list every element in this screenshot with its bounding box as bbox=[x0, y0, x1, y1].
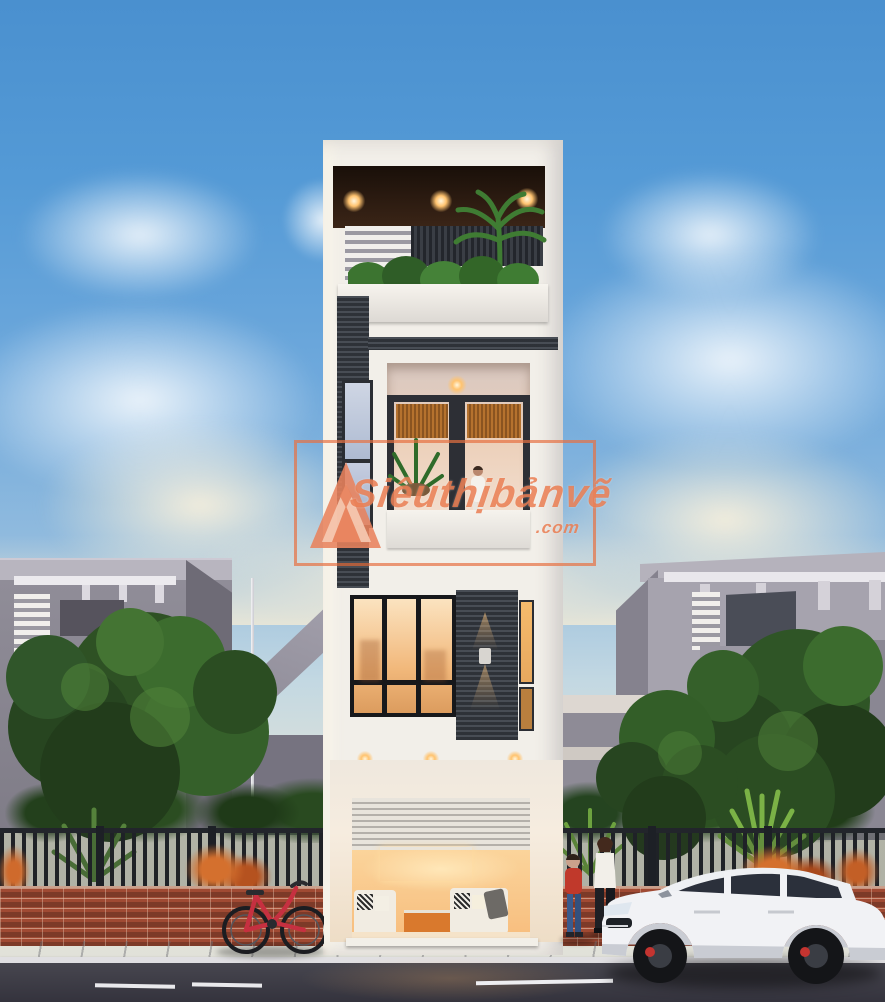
right-house-pergola-beam bbox=[664, 572, 885, 582]
entrance-step bbox=[346, 938, 538, 946]
pillow bbox=[375, 896, 389, 911]
rooftop-planter bbox=[338, 284, 548, 322]
patterned-pillow bbox=[357, 894, 373, 910]
architectural-render-scene: Siêuthịbảnvẽ .com bbox=[0, 0, 885, 1002]
red-bicycle bbox=[212, 862, 324, 956]
watermark-brand-text: Siêuthịbảnvẽ bbox=[346, 472, 593, 524]
white-suv-car bbox=[598, 856, 885, 988]
window-interior-shadow bbox=[424, 650, 446, 682]
fence-post bbox=[96, 826, 104, 894]
slate-band bbox=[368, 337, 558, 350]
watermark-tld-text: .com bbox=[534, 518, 597, 540]
wood-blind-right bbox=[467, 404, 521, 438]
window-interior-shadow bbox=[360, 640, 380, 682]
cloud bbox=[20, 170, 260, 300]
roller-shutter bbox=[352, 798, 530, 850]
amber-window-upper bbox=[519, 600, 534, 684]
wall-sconce bbox=[479, 648, 491, 664]
window-mullion bbox=[382, 599, 387, 713]
wall-art-painting bbox=[380, 847, 472, 881]
slate-wall-second-floor bbox=[456, 590, 518, 740]
road-warm-glow bbox=[300, 955, 600, 1002]
patterned-pillow bbox=[454, 893, 470, 909]
amber-window-lower bbox=[519, 687, 534, 731]
left-yard-tree bbox=[0, 582, 290, 844]
rooftop-light bbox=[339, 186, 369, 216]
pillow bbox=[472, 895, 485, 909]
window-mullion bbox=[416, 599, 421, 713]
